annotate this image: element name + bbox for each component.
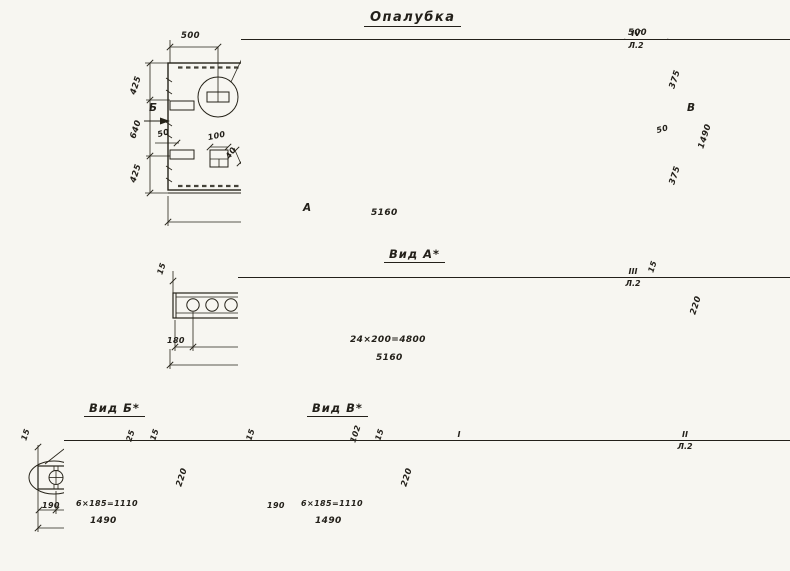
callout-iv-number: IV — [241, 29, 790, 40]
detail-callout-ii: II Л.2 — [290, 430, 790, 571]
section-arrow-v-label: В — [687, 103, 695, 113]
callout-iii-number: III — [238, 267, 790, 278]
dim-label-6x185-v: 6×185=1110 — [301, 499, 363, 509]
callout-ii-number: II — [290, 430, 790, 441]
dim-label-24x200: 24×200=4800 — [350, 335, 426, 345]
dim-label-1490-b: 1490 — [90, 516, 117, 526]
plan-detail-circle — [198, 52, 245, 117]
drawing-title: Опалубка — [364, 10, 461, 27]
dim-label-500-left: 500 — [181, 31, 200, 41]
dim-label-5160-plan: 5160 — [371, 208, 398, 218]
dim-label-1490-v: 1490 — [315, 516, 342, 526]
section-arrow-a-label: А — [303, 203, 312, 213]
view-b-title: Вид Б* — [84, 402, 145, 417]
dim-label-6x185-b: 6×185=1110 — [76, 499, 138, 509]
section-arrow-b-label: Б — [149, 103, 157, 113]
dim-label-180: 180 — [167, 336, 185, 346]
view-a-title: Вид А* — [384, 248, 445, 263]
callout-ii-sheet: Л.2 — [290, 441, 790, 571]
view-v-title: Вид В* — [307, 402, 368, 417]
dim-label-190-b: 190 — [42, 501, 60, 511]
dim-label-190-v: 190 — [267, 501, 285, 511]
drawing-sheet: Опалубка 500 IV Л.2 500 425 640 425 Б 50… — [0, 0, 790, 571]
dim-label-500-right: 500 — [628, 28, 647, 38]
dim-label-5160-view-a: 5160 — [376, 353, 403, 363]
